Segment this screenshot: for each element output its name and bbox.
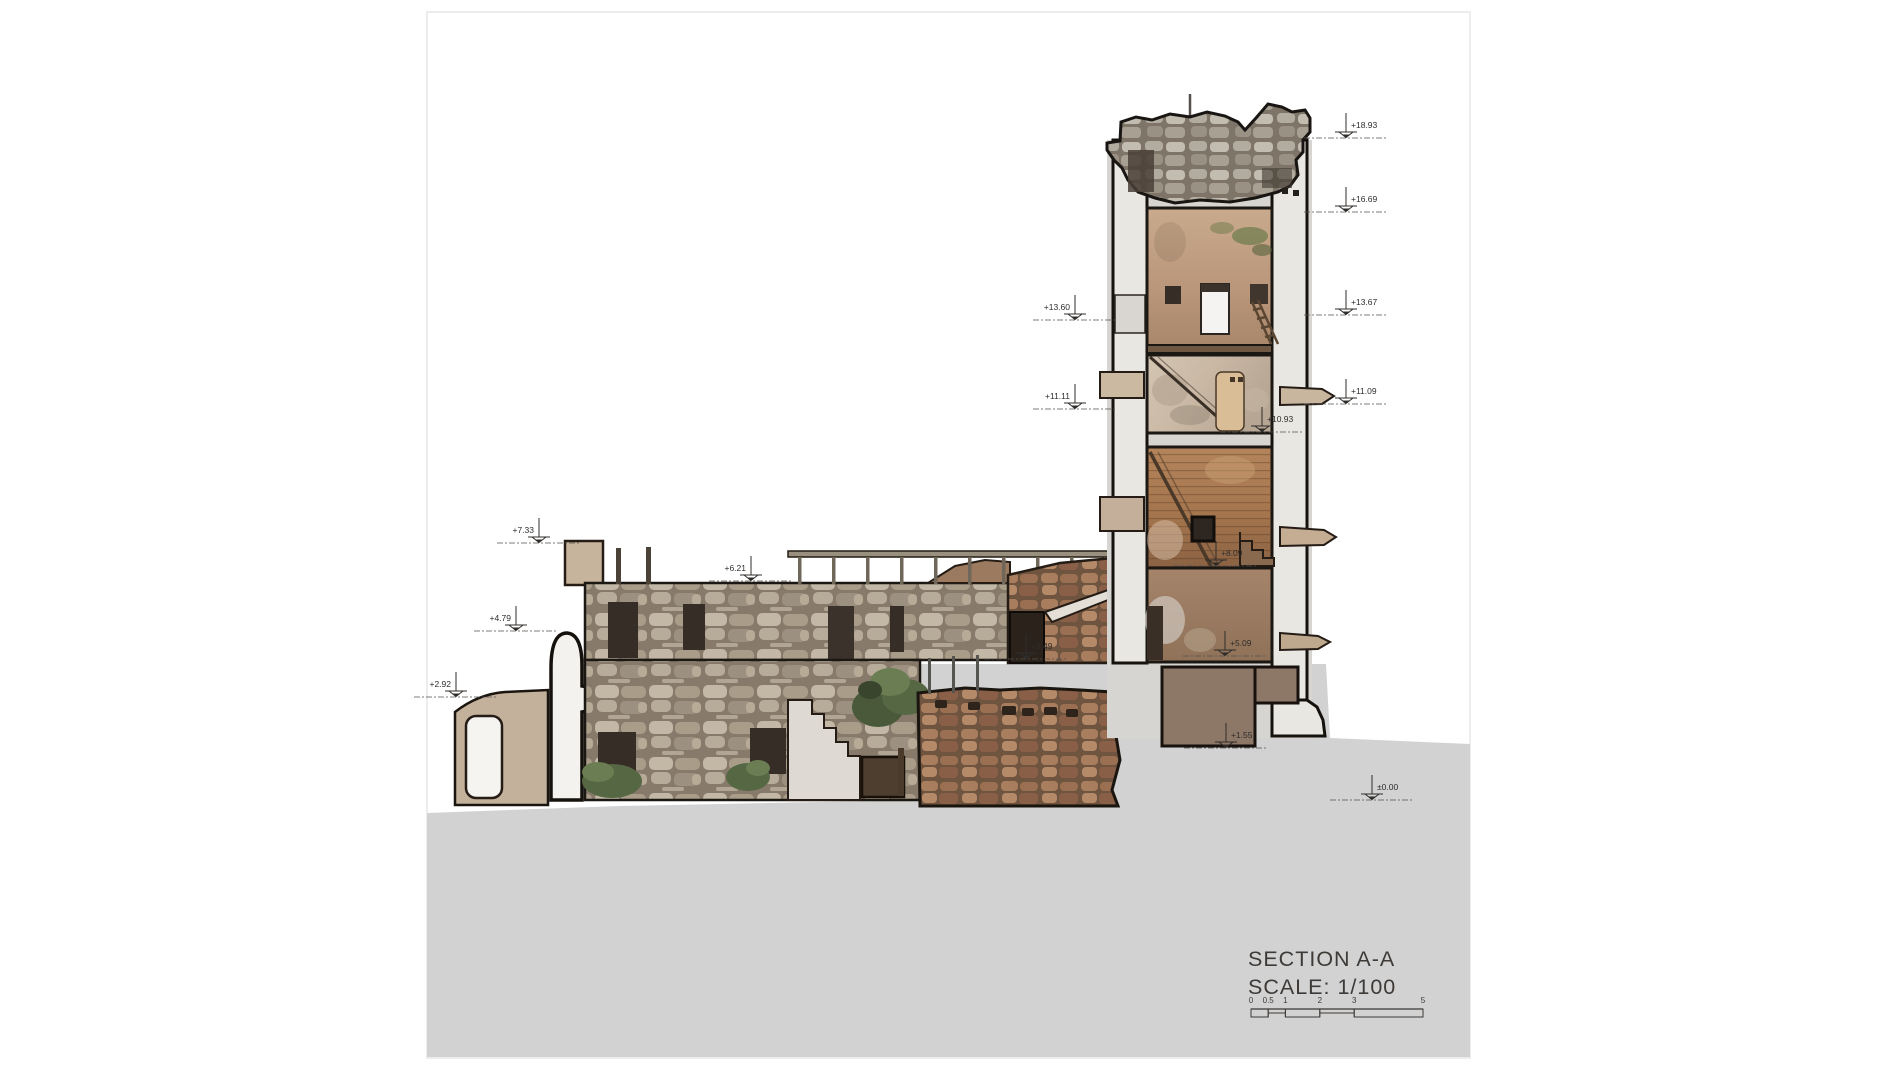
annex-door-opening <box>466 716 502 798</box>
door-opening <box>828 606 854 660</box>
base-doorway <box>1147 606 1163 660</box>
passage-building <box>1008 558 1113 663</box>
crown-shadow <box>1262 168 1292 188</box>
architectural-section-drawing: +18.93+16.69+13.67+11.09+13.60+11.11+10.… <box>0 0 1900 1069</box>
niche <box>1192 517 1214 541</box>
drawing-title: SECTION A-A <box>1248 947 1395 971</box>
roof-post <box>616 548 621 584</box>
elevation-value: +16.69 <box>1351 194 1378 204</box>
scale-bar-label: 5 <box>1421 996 1426 1005</box>
left-wall-window <box>1115 295 1145 333</box>
elevation-value: +1.55 <box>1231 730 1253 740</box>
tower-room-upper <box>1147 208 1278 348</box>
elevation-value: +7.33 <box>512 525 534 535</box>
left-wall-corbel <box>1100 497 1144 531</box>
elevation-value: +6.21 <box>724 563 746 573</box>
crown-shadow <box>1128 150 1154 192</box>
elevation-value: +4.79 <box>489 613 511 623</box>
pergola-beam <box>788 551 1118 557</box>
foundation-step <box>1255 667 1298 703</box>
tower-room-middle <box>1147 355 1272 433</box>
upper-stone-wall <box>585 583 1010 660</box>
passage-doorway <box>1010 612 1044 663</box>
scale-bar-label: 0 <box>1249 996 1254 1005</box>
elevation-value: ±0.00 <box>1377 782 1398 792</box>
elevation-value: +5.09 <box>1230 638 1252 648</box>
elevation-value: +10.93 <box>1267 414 1294 424</box>
elevation-value: +11.09 <box>1351 386 1377 396</box>
section-drawing-canvas: +18.93+16.69+13.67+11.09+13.60+11.11+10.… <box>0 0 1900 1069</box>
tree-trunk <box>898 748 904 796</box>
window-opening <box>608 602 638 658</box>
elevation-value: +13.60 <box>1044 302 1071 312</box>
tower-left-wall <box>1113 140 1147 663</box>
gate-annex <box>455 690 548 805</box>
tower-base-room <box>1145 568 1272 662</box>
parapet-block <box>565 541 603 585</box>
elevation-value: +3.49 <box>1031 641 1053 651</box>
scale-bar-label: 1 <box>1283 996 1288 1005</box>
well-planter <box>862 757 904 797</box>
elevation-value: +2.92 <box>429 679 451 689</box>
elevation-value: +18.93 <box>1351 120 1378 130</box>
elevation-value: +8.09 <box>1221 548 1243 558</box>
tower-room-lower <box>1147 447 1274 568</box>
elevation-value: +11.11 <box>1045 391 1070 401</box>
roof-post <box>646 547 651 584</box>
tower <box>1100 94 1336 746</box>
elevation-value: +13.67 <box>1351 297 1378 307</box>
window-opening <box>890 606 904 652</box>
window-opening <box>683 604 705 650</box>
scale-bar-label: 0.5 <box>1263 996 1275 1005</box>
left-wall-corbel <box>1100 372 1144 398</box>
tower-right-wall-foot <box>1272 700 1325 736</box>
scale-bar-label: 2 <box>1318 996 1323 1005</box>
niche <box>1165 286 1181 304</box>
wall-vegetation <box>1232 227 1268 245</box>
floor-slab <box>1147 345 1272 353</box>
scale-bar-label: 3 <box>1352 996 1357 1005</box>
